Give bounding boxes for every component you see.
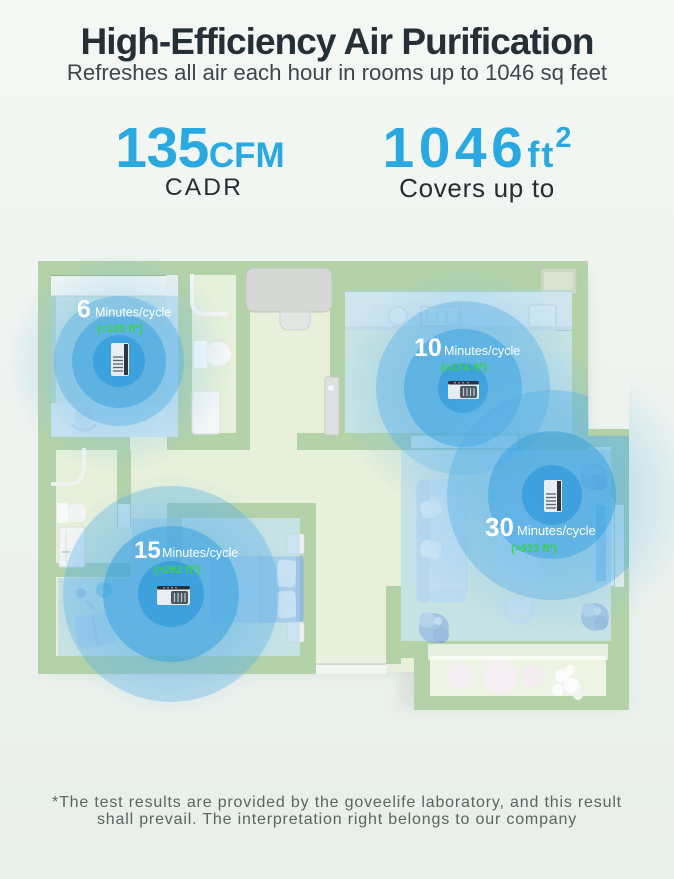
svg-text:10: 10 [414,334,442,362]
svg-text:Minutes/cycle: Minutes/cycle [95,306,171,320]
svg-text:(≈523 ft²): (≈523 ft²) [511,543,557,555]
svg-text:Minutes/cycle: Minutes/cycle [517,523,596,538]
svg-text:6: 6 [77,296,91,324]
svg-text:30: 30 [485,512,514,542]
svg-text:15: 15 [134,537,161,564]
svg-text:(≈105 ft²): (≈105 ft²) [97,323,143,335]
svg-text:Minutes/cycle: Minutes/cycle [162,546,238,560]
svg-text:Minutes/cycle: Minutes/cycle [444,344,520,358]
svg-text:(≈262 ft²): (≈262 ft²) [154,564,200,576]
